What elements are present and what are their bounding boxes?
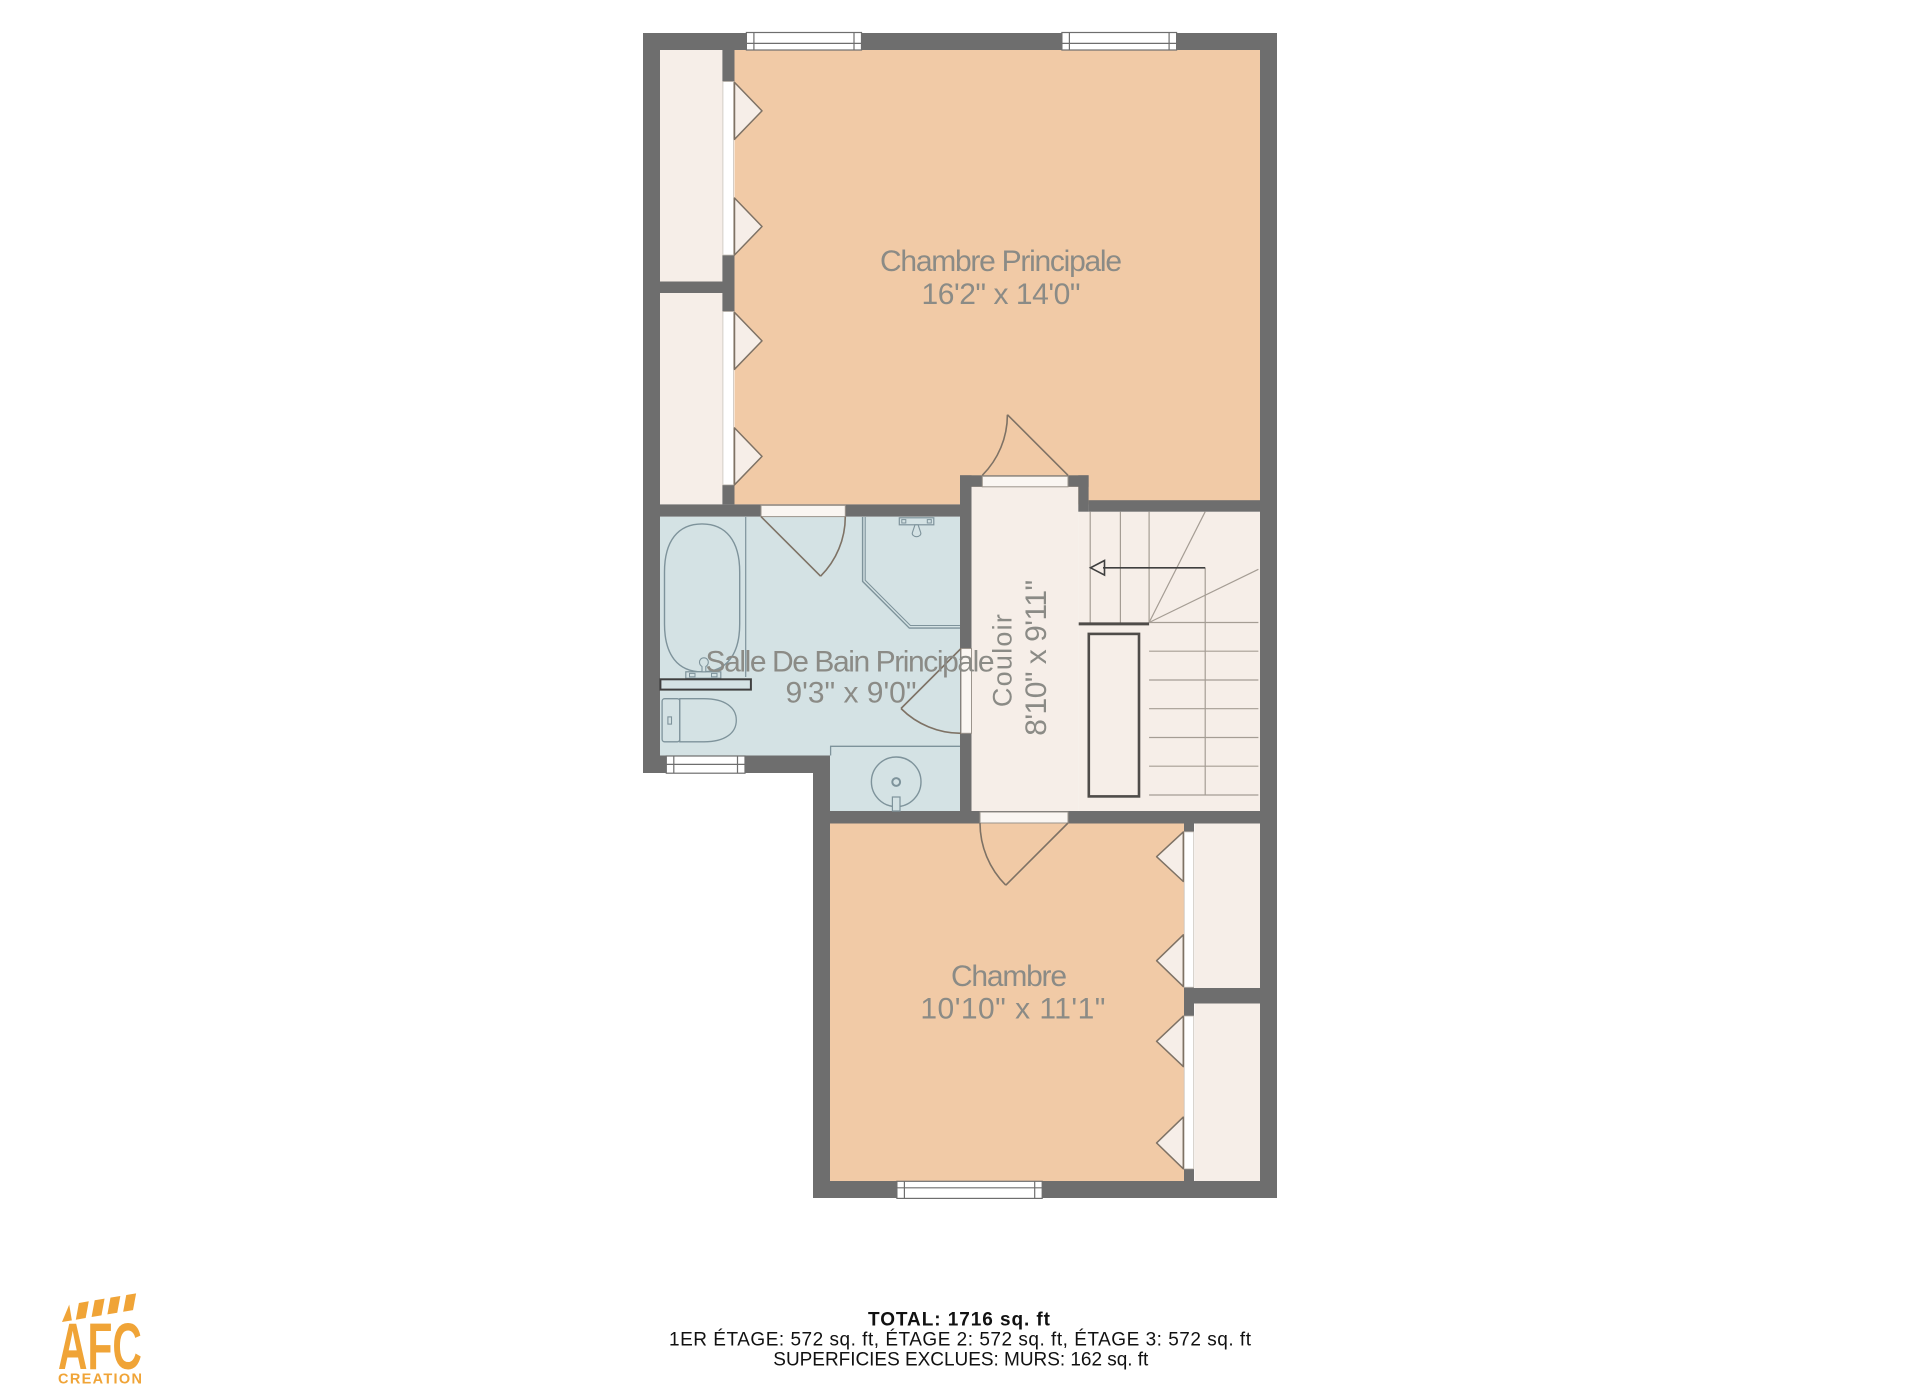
svg-text:Chambre: Chambre: [951, 960, 1067, 993]
svg-text:10'10" x 11'1": 10'10" x 11'1": [920, 993, 1105, 1026]
svg-text:9'3" x 9'0": 9'3" x 9'0": [786, 676, 917, 709]
svg-text:Couloir: Couloir: [988, 614, 1018, 707]
svg-text:Chambre Principale: Chambre Principale: [880, 245, 1122, 278]
svg-text:1ER ÉTAGE: 572 sq. ft, ÉTAGE 2: 1ER ÉTAGE: 572 sq. ft, ÉTAGE 2: 572 sq. …: [669, 1329, 1252, 1350]
svg-text:Salle De Bain Principale: Salle De Bain Principale: [706, 645, 995, 678]
svg-text:16'2" x 14'0": 16'2" x 14'0": [922, 278, 1081, 311]
svg-text:8'10" x 9'11": 8'10" x 9'11": [1020, 580, 1053, 736]
svg-text:TOTAL: 1716 sq. ft: TOTAL: 1716 sq. ft: [868, 1310, 1051, 1331]
svg-text:SUPERFICIES EXCLUES: MURS: 162: SUPERFICIES EXCLUES: MURS: 162 sq. ft: [773, 1350, 1149, 1371]
svg-text:CREATION: CREATION: [58, 1371, 142, 1387]
